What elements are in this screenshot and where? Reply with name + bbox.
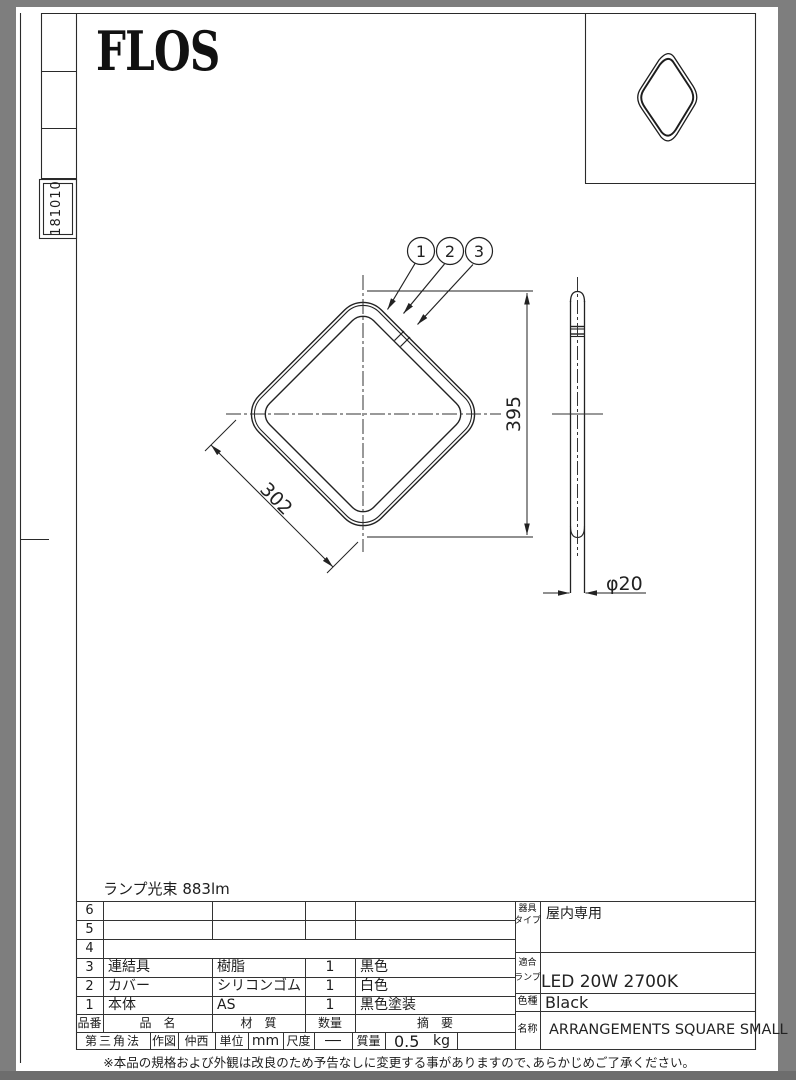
part-row-5-no: 5 [76,920,103,939]
part-row-3-material: 樹脂 [217,958,303,977]
unit-label: 単位 [215,1032,248,1051]
footer-disclaimer: ※本品の規格および外観は改良のため予告なしに変更する事がありますので､あらかじめ… [76,1052,716,1071]
name-label: 名称 [515,1025,540,1035]
part-row-1-no: 1 [76,996,103,1015]
color-value: Black [545,993,588,1012]
lamp-label-line1: 適合 [515,958,540,968]
drawn-label: 作図 [150,1032,178,1051]
part-row-1-material: AS [217,996,303,1015]
weight-value: 0.5 [394,1032,426,1051]
lamp-value: LED 20W 2700K [541,972,678,992]
flos-logo: FLOS [96,24,220,78]
weight-unit: kg [433,1032,457,1051]
product-thumbnail [638,54,697,141]
part-row-3-remark: 黒色 [360,958,510,977]
sheet-frame [21,13,756,1063]
unit-value: mm [248,1032,283,1051]
part-row-3-no: 3 [76,958,103,977]
fixture-type-value: 屋内専用 [546,903,602,923]
side-view-centerlines [552,277,603,556]
header-qty: 数量 [305,1014,355,1033]
scale-label: 尺度 [283,1032,314,1051]
dim-height-text: 395 [503,392,525,436]
drawing-sheet: FLOS 181010 1 2 3 395 302 φ20 ランプ光束 883l… [0,0,796,1080]
callout-2-label: 2 [440,242,460,261]
part-row-4-no: 4 [76,939,103,958]
part-row-2-no: 2 [76,977,103,996]
part-row-2-name: カバー [108,977,208,996]
header-part-name: 品 名 [103,1014,212,1033]
part-row-1-name: 本体 [108,996,208,1015]
color-label: 色種 [515,997,540,1007]
header-remark: 摘 要 [355,1014,515,1033]
part-row-1-qty: 1 [305,996,355,1015]
part-row-3-qty: 1 [305,958,355,977]
cad-linework [0,0,796,1080]
part-row-2-material: シリコンゴム [217,977,303,996]
header-part-no: 品番 [76,1014,103,1033]
product-name-value: ARRANGEMENTS SQUARE SMALL [549,1022,788,1038]
callout-1-label: 1 [411,242,431,261]
header-material: 材 質 [212,1014,305,1033]
part-row-1-remark: 黒色塗装 [360,996,510,1015]
scale-value: ── [314,1032,352,1051]
doc-number: 181010 [49,178,67,238]
weight-label: 質量 [352,1032,385,1051]
fixture-type-label-line1: 器具 [515,904,540,914]
part-row-2-remark: 白色 [360,977,510,996]
part-row-2-qty: 1 [305,977,355,996]
part-row-6-no: 6 [76,901,103,920]
callout-3-label: 3 [469,242,489,261]
fixture-type-label-line2: タイプ [513,916,542,926]
drawn-by: 仲西 [178,1032,215,1051]
lamp-flux-note: ランプ光束 883lm [103,878,230,899]
lamp-label-line2: ランプ [512,973,543,983]
projection-method: 第三角法 [76,1032,150,1051]
part-row-3-name: 連結具 [108,958,208,977]
dim-diameter-text: φ20 [606,573,643,595]
